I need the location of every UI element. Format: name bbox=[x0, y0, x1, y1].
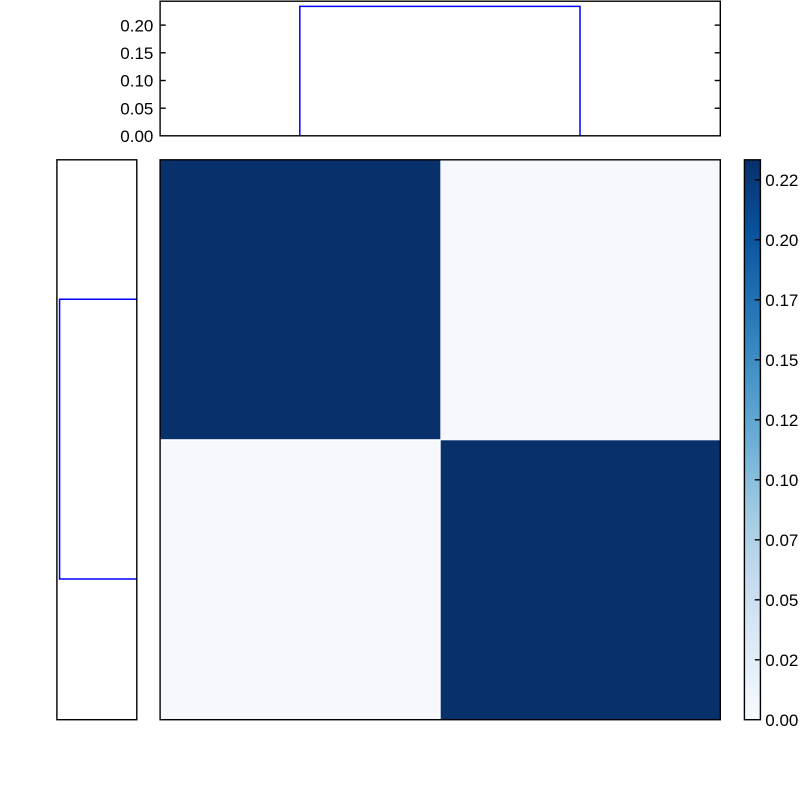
svg-text:0.20: 0.20 bbox=[120, 16, 153, 35]
svg-text:0.02: 0.02 bbox=[765, 651, 798, 670]
svg-text:0.10: 0.10 bbox=[120, 72, 153, 91]
svg-text:0.07: 0.07 bbox=[765, 531, 798, 550]
svg-text:0.22: 0.22 bbox=[765, 171, 798, 190]
svg-text:0.10: 0.10 bbox=[765, 471, 798, 490]
svg-text:0.12: 0.12 bbox=[765, 411, 798, 430]
svg-text:0.05: 0.05 bbox=[765, 591, 798, 610]
svg-text:0.17: 0.17 bbox=[765, 291, 798, 310]
svg-text:0.15: 0.15 bbox=[120, 44, 153, 63]
svg-text:0.00: 0.00 bbox=[120, 127, 153, 146]
svg-text:0.15: 0.15 bbox=[765, 351, 798, 370]
svg-text:0.05: 0.05 bbox=[120, 99, 153, 118]
svg-text:0.00: 0.00 bbox=[765, 711, 798, 730]
svg-text:0.20: 0.20 bbox=[765, 231, 798, 250]
